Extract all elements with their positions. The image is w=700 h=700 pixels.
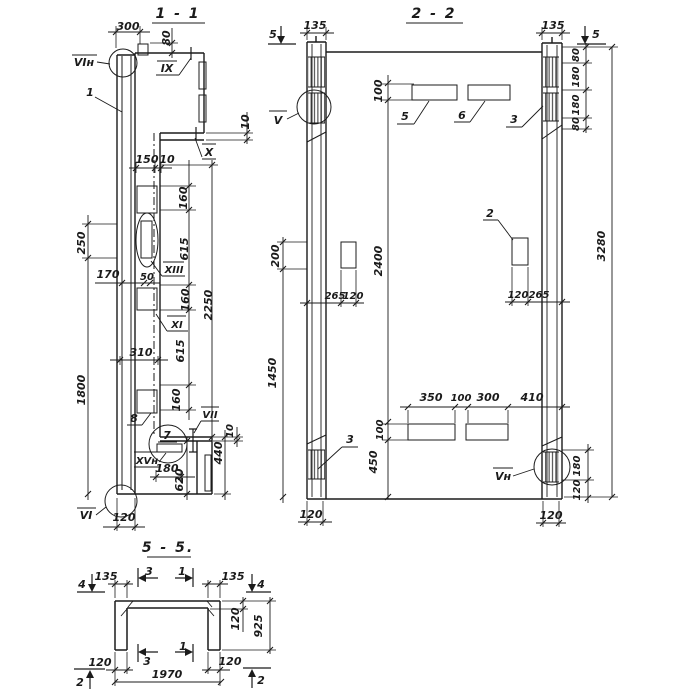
dim-135-left: 135 bbox=[304, 19, 327, 32]
cut-marker-4-right: 4 bbox=[256, 578, 265, 591]
dim-180-a: 180 bbox=[571, 67, 582, 88]
dim-300: 300 bbox=[117, 20, 140, 33]
label-xiii: XIII bbox=[164, 265, 184, 276]
dim-80: 80 bbox=[160, 30, 173, 46]
dim-160-b: 160 bbox=[179, 288, 192, 311]
dim-170: 170 bbox=[97, 268, 120, 281]
dim-250: 250 bbox=[75, 231, 88, 254]
title-5-5: 5 - 5. bbox=[142, 540, 194, 556]
dim-120-br-rot: 120 bbox=[572, 480, 583, 501]
title-1-1: 1 - 1 bbox=[155, 6, 200, 22]
dim-120-rot-55: 120 bbox=[229, 607, 242, 630]
cut-marker-1-bottom: 1 bbox=[179, 640, 187, 653]
dim-120-bl-55: 120 bbox=[89, 656, 112, 669]
dim-10-top: 10 bbox=[239, 114, 252, 130]
drawing-sheet: { "meta": { "background": "#ffffff", "in… bbox=[0, 0, 700, 700]
dim-80-b: 80 bbox=[571, 117, 582, 131]
dim-100-top: 100 bbox=[372, 79, 385, 102]
cut-marker-3-top: 3 bbox=[145, 565, 153, 578]
dim-1970: 1970 bbox=[152, 668, 183, 681]
label-pos-1: 1 bbox=[86, 86, 94, 99]
dim-180-b: 180 bbox=[571, 95, 582, 116]
cut-marker-4-left: 4 bbox=[77, 578, 86, 591]
label-xv-n: XVн bbox=[135, 456, 158, 467]
detail-callout-circles-2-2 bbox=[297, 90, 570, 485]
section-5-5: 5 - 5. 4 4 135 135 3 1 120 925 120 120 1… bbox=[74, 540, 276, 689]
cut-marker-5-right: 5 bbox=[592, 28, 600, 41]
dim-100-bottom: 100 bbox=[375, 420, 386, 441]
dim-310: 310 bbox=[130, 346, 153, 359]
label-v-n: Vн bbox=[495, 470, 512, 483]
dim-150: 150 bbox=[136, 153, 159, 166]
dim-620: 620 bbox=[173, 468, 186, 491]
dim-80-a: 80 bbox=[571, 48, 582, 62]
label-pos-5: 5 bbox=[401, 110, 409, 123]
dim-120-br-55: 120 bbox=[219, 655, 242, 668]
label-ix: IX bbox=[161, 62, 174, 75]
dim-10-wing: 10 bbox=[225, 424, 236, 438]
label-pos-3-right: 3 bbox=[510, 113, 518, 126]
structural-panel-drawing: 1 - 1 300 80 VIн 1 IX X 150 10 10 160 61… bbox=[0, 0, 700, 700]
cut-marker-5-left: 5 bbox=[269, 28, 277, 41]
label-pos-6: 6 bbox=[458, 109, 466, 122]
dim-ticks-2-2 bbox=[280, 30, 615, 526]
dim-160-a: 160 bbox=[177, 186, 190, 209]
column-inner-lines-2-2 bbox=[312, 44, 557, 497]
dim-2400: 2400 bbox=[372, 245, 385, 276]
dim-300-mid: 300 bbox=[477, 391, 500, 404]
dim-440: 440 bbox=[212, 441, 225, 465]
extension-lines-2-2 bbox=[277, 27, 618, 527]
title-2-2: 2 - 2 bbox=[411, 6, 456, 22]
label-pos-3-left: 3 bbox=[346, 433, 354, 446]
dim-1800: 1800 bbox=[75, 374, 88, 405]
dim-200: 200 bbox=[269, 244, 282, 267]
dim-410: 410 bbox=[520, 391, 544, 404]
dim-10-notch: 10 bbox=[159, 153, 175, 166]
dim-925: 925 bbox=[252, 614, 265, 637]
dim-1450: 1450 bbox=[266, 357, 279, 388]
cut-marker-1-top: 1 bbox=[178, 565, 186, 578]
label-x: X bbox=[204, 146, 214, 159]
dim-ticks-5-5 bbox=[112, 581, 273, 685]
dim-120-bottom-left: 120 bbox=[300, 508, 323, 521]
dim-135-right-55: 135 bbox=[222, 570, 245, 583]
dim-120-mid-left: 120 bbox=[343, 291, 364, 302]
dim-120-bottom-right: 120 bbox=[540, 509, 563, 522]
label-pos-7: 7 bbox=[163, 429, 171, 442]
dim-350: 350 bbox=[420, 391, 443, 404]
cut-marker-3-bottom: 3 bbox=[143, 655, 151, 668]
dim-135-right: 135 bbox=[542, 19, 565, 32]
dim-450: 450 bbox=[367, 450, 380, 474]
section-2-2: 2 - 2 5 5 135 135 V 5 6 3 100 80 180 180… bbox=[266, 6, 618, 527]
embedded-plates-2-2 bbox=[308, 57, 559, 482]
dim-180-br: 180 bbox=[572, 456, 583, 477]
dim-615-b: 615 bbox=[174, 339, 187, 362]
label-vi-n-top: VIн bbox=[74, 56, 95, 69]
label-vii: VII bbox=[202, 410, 217, 421]
label-pos-2: 2 bbox=[486, 207, 494, 220]
dim-120-mid-right: 120 bbox=[508, 290, 529, 301]
dim-265-right: 265 bbox=[529, 290, 550, 301]
column-detail-lines-2-2 bbox=[307, 57, 562, 482]
section-1-1: 1 - 1 300 80 VIн 1 IX X 150 10 10 160 61… bbox=[72, 6, 253, 531]
dim-160-c: 160 bbox=[170, 388, 183, 411]
label-v: V bbox=[274, 114, 284, 127]
label-xi: XI bbox=[170, 320, 183, 331]
dim-615-a: 615 bbox=[178, 237, 191, 260]
dim-3280: 3280 bbox=[595, 230, 608, 261]
dim-135-left-55: 135 bbox=[95, 570, 118, 583]
label-pos-8: 8 bbox=[130, 412, 138, 425]
dim-120-bottom: 120 bbox=[113, 511, 136, 524]
dim-50: 50 bbox=[140, 272, 154, 283]
label-vi-bottom: VI bbox=[80, 509, 93, 522]
cut-marker-2-left: 2 bbox=[76, 676, 84, 689]
cut-marker-2-right: 2 bbox=[257, 674, 265, 687]
dim-2250: 2250 bbox=[202, 289, 215, 320]
dim-100-mid: 100 bbox=[451, 393, 472, 404]
channel-outline-5-5 bbox=[115, 601, 220, 650]
